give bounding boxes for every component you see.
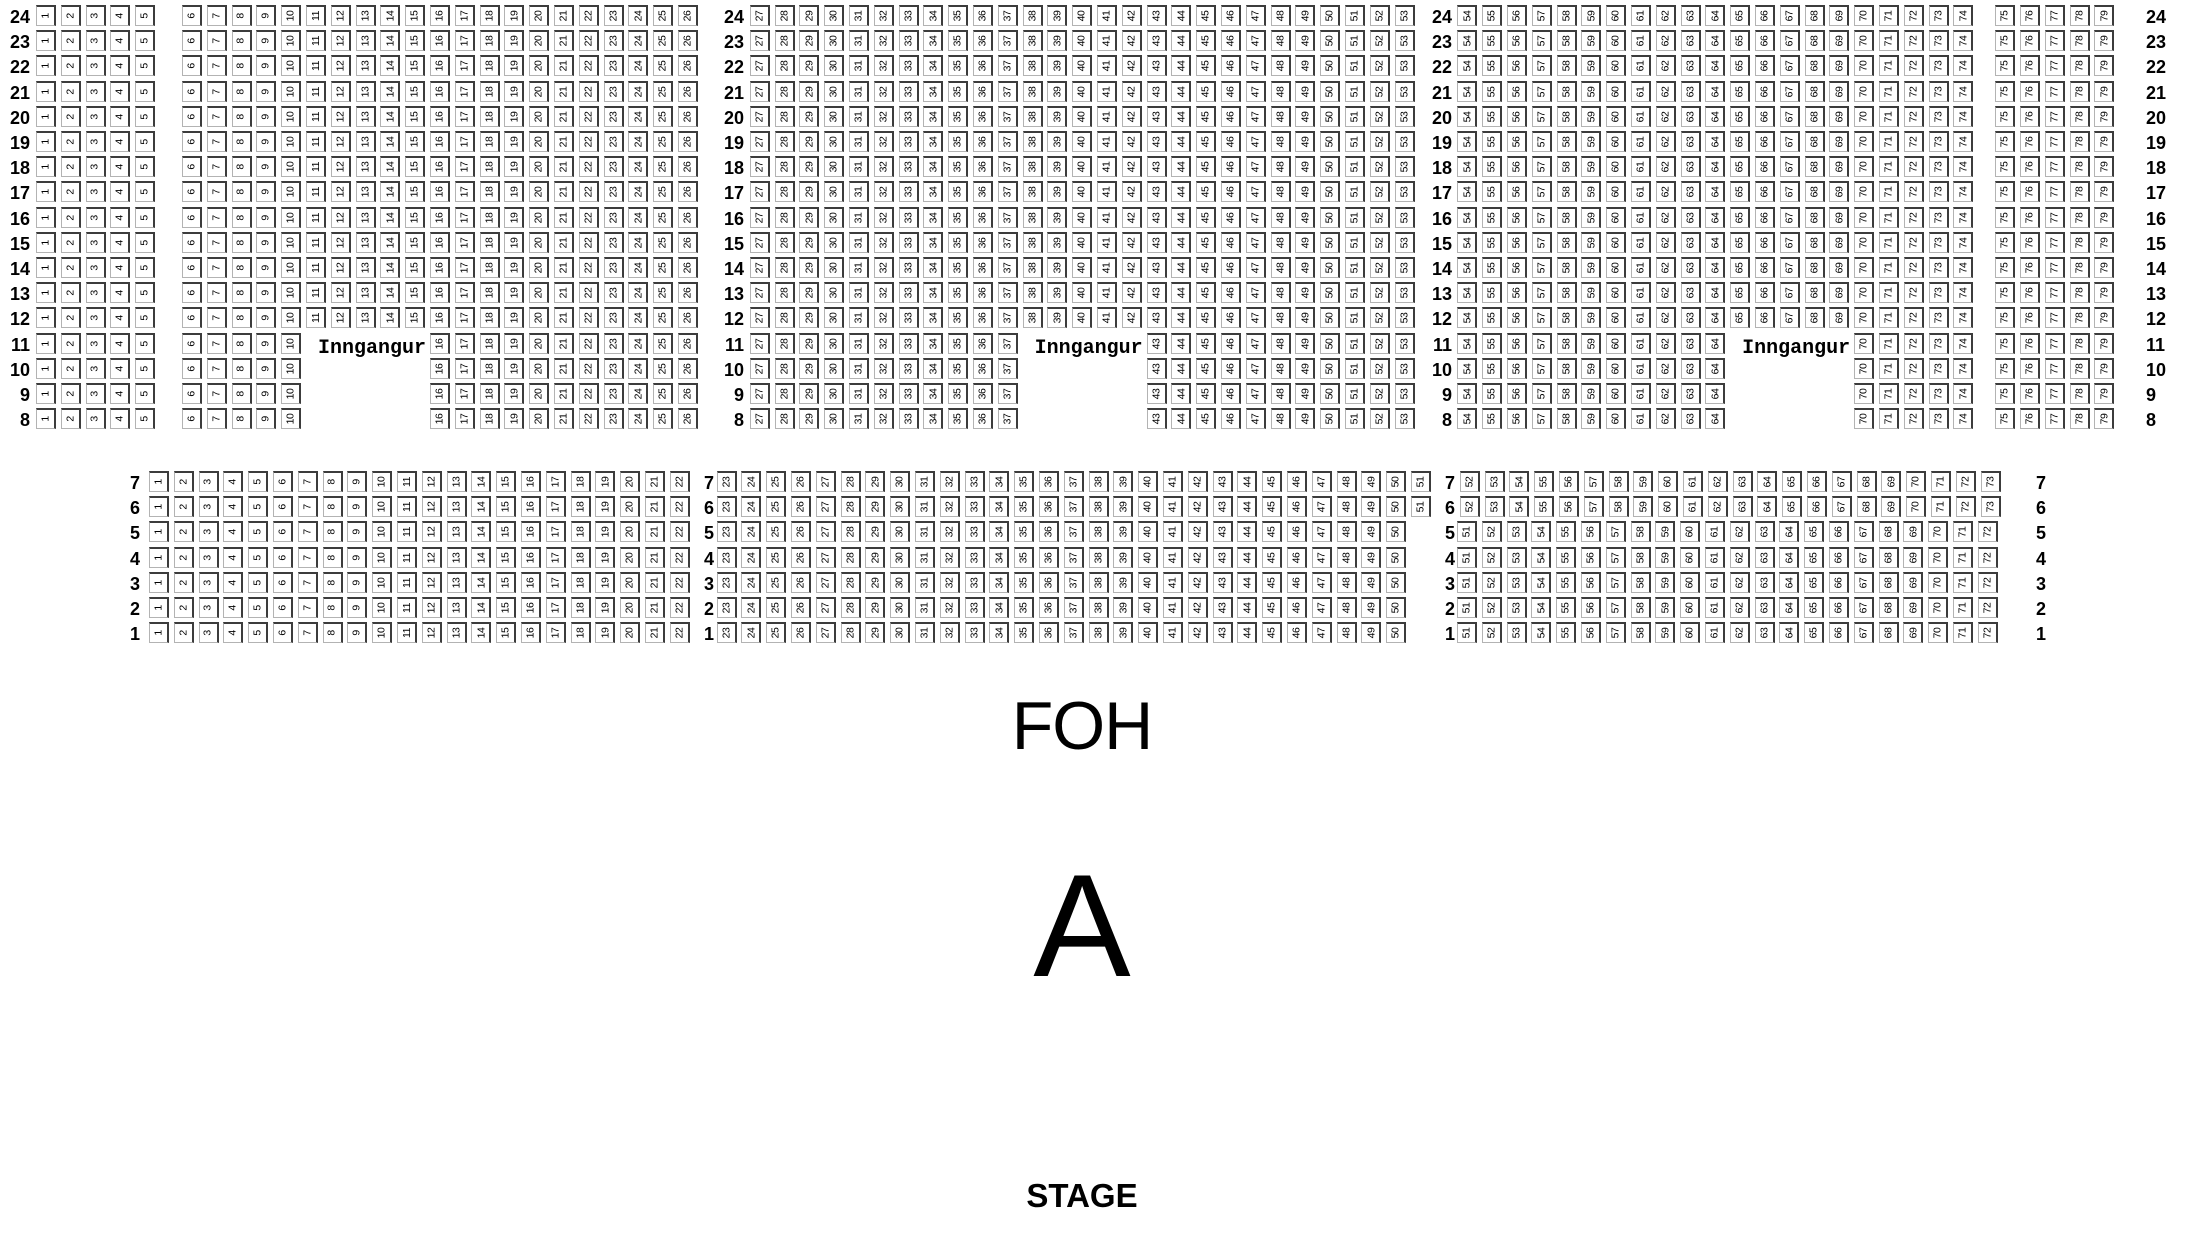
seat[interactable]: 17 [546, 622, 566, 643]
seat[interactable]: 48 [1271, 181, 1291, 202]
seat[interactable]: 21 [554, 282, 574, 303]
seat[interactable]: 35 [948, 55, 968, 76]
seat[interactable]: 40 [1138, 521, 1158, 542]
seat[interactable]: 52 [1482, 572, 1502, 593]
seat[interactable]: 46 [1221, 307, 1241, 328]
seat[interactable]: 47 [1246, 181, 1266, 202]
seat[interactable]: 31 [849, 383, 869, 404]
seat[interactable]: 25 [766, 496, 786, 517]
seat[interactable]: 5 [135, 131, 155, 152]
seat[interactable]: 1 [149, 622, 169, 643]
seat[interactable]: 1 [36, 383, 56, 404]
seat[interactable]: 18 [480, 383, 500, 404]
seat[interactable]: 55 [1482, 131, 1502, 152]
seat[interactable]: 5 [135, 307, 155, 328]
seat[interactable]: 67 [1780, 5, 1800, 26]
seat[interactable]: 61 [1631, 106, 1651, 127]
seat[interactable]: 64 [1705, 408, 1725, 429]
seat[interactable]: 43 [1213, 597, 1233, 618]
seat[interactable]: 13 [447, 547, 467, 568]
seat[interactable]: 70 [1854, 30, 1874, 51]
seat[interactable]: 1 [149, 521, 169, 542]
seat[interactable]: 51 [1345, 55, 1365, 76]
seat[interactable]: 17 [546, 496, 566, 517]
seat[interactable]: 74 [1953, 232, 1973, 253]
seat[interactable]: 2 [61, 5, 81, 26]
seat[interactable]: 45 [1262, 572, 1282, 593]
seat[interactable]: 55 [1482, 333, 1502, 354]
seat[interactable]: 64 [1705, 282, 1725, 303]
seat[interactable]: 57 [1532, 55, 1552, 76]
seat[interactable]: 21 [554, 408, 574, 429]
seat[interactable]: 2 [61, 55, 81, 76]
seat[interactable]: 11 [306, 232, 326, 253]
seat[interactable]: 43 [1147, 358, 1167, 379]
seat[interactable]: 12 [331, 257, 351, 278]
seat[interactable]: 70 [1854, 106, 1874, 127]
seat[interactable]: 2 [174, 547, 194, 568]
seat[interactable]: 19 [504, 307, 524, 328]
seat[interactable]: 3 [199, 572, 219, 593]
seat[interactable]: 27 [750, 156, 770, 177]
seat[interactable]: 11 [306, 30, 326, 51]
seat[interactable]: 8 [232, 181, 252, 202]
seat[interactable]: 60 [1606, 207, 1626, 228]
seat[interactable]: 24 [741, 572, 761, 593]
seat[interactable]: 68 [1805, 106, 1825, 127]
seat[interactable]: 50 [1320, 131, 1340, 152]
seat[interactable]: 70 [1928, 622, 1948, 643]
seat[interactable]: 46 [1221, 232, 1241, 253]
seat[interactable]: 24 [628, 55, 648, 76]
seat[interactable]: 48 [1271, 257, 1291, 278]
seat[interactable]: 60 [1606, 307, 1626, 328]
seat[interactable]: 2 [61, 81, 81, 102]
seat[interactable]: 3 [86, 5, 106, 26]
seat[interactable]: 21 [554, 106, 574, 127]
seat[interactable]: 5 [248, 597, 268, 618]
seat[interactable]: 6 [182, 358, 202, 379]
seat[interactable]: 27 [750, 5, 770, 26]
seat[interactable]: 33 [899, 408, 919, 429]
seat[interactable]: 37 [1064, 572, 1084, 593]
seat[interactable]: 38 [1023, 106, 1043, 127]
seat[interactable]: 44 [1171, 257, 1191, 278]
seat[interactable]: 74 [1953, 408, 1973, 429]
seat[interactable]: 6 [182, 207, 202, 228]
seat[interactable]: 44 [1171, 81, 1191, 102]
seat[interactable]: 70 [1928, 521, 1948, 542]
seat[interactable]: 4 [110, 207, 130, 228]
seat[interactable]: 27 [816, 572, 836, 593]
seat[interactable]: 19 [595, 547, 615, 568]
seat[interactable]: 67 [1854, 572, 1874, 593]
seat[interactable]: 20 [620, 597, 640, 618]
seat[interactable]: 51 [1457, 597, 1477, 618]
seat[interactable]: 13 [356, 81, 376, 102]
seat[interactable]: 51 [1345, 307, 1365, 328]
seat[interactable]: 31 [915, 572, 935, 593]
seat[interactable]: 52 [1370, 408, 1390, 429]
seat[interactable]: 3 [86, 408, 106, 429]
seat[interactable]: 71 [1953, 572, 1973, 593]
seat[interactable]: 77 [2045, 55, 2065, 76]
seat[interactable]: 57 [1532, 5, 1552, 26]
seat[interactable]: 45 [1196, 81, 1216, 102]
seat[interactable]: 72 [1904, 358, 1924, 379]
seat[interactable]: 69 [1829, 106, 1849, 127]
seat[interactable]: 11 [397, 496, 417, 517]
seat[interactable]: 21 [645, 521, 665, 542]
seat[interactable]: 4 [223, 572, 243, 593]
seat[interactable]: 52 [1370, 106, 1390, 127]
seat[interactable]: 59 [1581, 5, 1601, 26]
seat[interactable]: 25 [653, 282, 673, 303]
seat[interactable]: 30 [824, 408, 844, 429]
seat[interactable]: 5 [135, 383, 155, 404]
seat[interactable]: 39 [1113, 572, 1133, 593]
seat[interactable]: 12 [331, 207, 351, 228]
seat[interactable]: 31 [849, 131, 869, 152]
seat[interactable]: 69 [1903, 572, 1923, 593]
seat[interactable]: 23 [604, 181, 624, 202]
seat[interactable]: 14 [380, 81, 400, 102]
seat[interactable]: 13 [447, 597, 467, 618]
seat[interactable]: 26 [678, 156, 698, 177]
seat[interactable]: 29 [799, 81, 819, 102]
seat[interactable]: 62 [1656, 5, 1676, 26]
seat[interactable]: 47 [1246, 232, 1266, 253]
seat[interactable]: 59 [1655, 572, 1675, 593]
seat[interactable]: 16 [430, 106, 450, 127]
seat[interactable]: 26 [791, 572, 811, 593]
seat[interactable]: 12 [331, 81, 351, 102]
seat[interactable]: 73 [1929, 383, 1949, 404]
seat[interactable]: 11 [397, 622, 417, 643]
seat[interactable]: 16 [521, 597, 541, 618]
seat[interactable]: 12 [422, 572, 442, 593]
seat[interactable]: 57 [1532, 383, 1552, 404]
seat[interactable]: 54 [1531, 547, 1551, 568]
seat[interactable]: 63 [1755, 622, 1775, 643]
seat[interactable]: 19 [504, 156, 524, 177]
seat[interactable]: 64 [1705, 156, 1725, 177]
seat[interactable]: 18 [480, 358, 500, 379]
seat[interactable]: 45 [1196, 156, 1216, 177]
seat[interactable]: 40 [1072, 307, 1092, 328]
seat[interactable]: 49 [1361, 622, 1381, 643]
seat[interactable]: 2 [61, 30, 81, 51]
seat[interactable]: 11 [397, 521, 417, 542]
seat[interactable]: 72 [1904, 282, 1924, 303]
seat[interactable]: 36 [973, 232, 993, 253]
seat[interactable]: 18 [480, 207, 500, 228]
seat[interactable]: 24 [741, 471, 761, 492]
seat[interactable]: 62 [1730, 597, 1750, 618]
seat[interactable]: 6 [182, 307, 202, 328]
seat[interactable]: 69 [1903, 521, 1923, 542]
seat[interactable]: 38 [1089, 521, 1109, 542]
seat[interactable]: 20 [529, 207, 549, 228]
seat[interactable]: 53 [1395, 81, 1415, 102]
seat[interactable]: 3 [86, 106, 106, 127]
seat[interactable]: 30 [824, 55, 844, 76]
seat[interactable]: 48 [1271, 333, 1291, 354]
seat[interactable]: 24 [741, 547, 761, 568]
seat[interactable]: 27 [816, 521, 836, 542]
seat[interactable]: 36 [1039, 496, 1059, 517]
seat[interactable]: 7 [207, 131, 227, 152]
seat[interactable]: 38 [1023, 81, 1043, 102]
seat[interactable]: 12 [422, 622, 442, 643]
seat[interactable]: 68 [1805, 307, 1825, 328]
seat[interactable]: 25 [653, 5, 673, 26]
seat[interactable]: 27 [816, 622, 836, 643]
seat[interactable]: 70 [1906, 496, 1926, 517]
seat[interactable]: 41 [1163, 521, 1183, 542]
seat[interactable]: 48 [1337, 572, 1357, 593]
seat[interactable]: 8 [232, 358, 252, 379]
seat[interactable]: 58 [1557, 30, 1577, 51]
seat[interactable]: 29 [799, 106, 819, 127]
seat[interactable]: 33 [899, 55, 919, 76]
seat[interactable]: 56 [1581, 572, 1601, 593]
seat[interactable]: 5 [135, 156, 155, 177]
seat[interactable]: 63 [1681, 232, 1701, 253]
seat[interactable]: 1 [36, 207, 56, 228]
seat[interactable]: 7 [207, 81, 227, 102]
seat[interactable]: 75 [1995, 181, 2015, 202]
seat[interactable]: 2 [61, 207, 81, 228]
seat[interactable]: 48 [1337, 547, 1357, 568]
seat[interactable]: 54 [1457, 307, 1477, 328]
seat[interactable]: 18 [480, 106, 500, 127]
seat[interactable]: 74 [1953, 257, 1973, 278]
seat[interactable]: 11 [306, 81, 326, 102]
seat[interactable]: 70 [1854, 5, 1874, 26]
seat[interactable]: 56 [1507, 207, 1527, 228]
seat[interactable]: 73 [1929, 408, 1949, 429]
seat[interactable]: 21 [645, 547, 665, 568]
seat[interactable]: 57 [1532, 232, 1552, 253]
seat[interactable]: 44 [1171, 408, 1191, 429]
seat[interactable]: 28 [775, 106, 795, 127]
seat[interactable]: 38 [1023, 156, 1043, 177]
seat[interactable]: 10 [372, 496, 392, 517]
seat[interactable]: 36 [1039, 471, 1059, 492]
seat[interactable]: 2 [174, 496, 194, 517]
seat[interactable]: 63 [1681, 408, 1701, 429]
seat[interactable]: 14 [380, 207, 400, 228]
seat[interactable]: 56 [1507, 106, 1527, 127]
seat[interactable]: 21 [554, 358, 574, 379]
seat[interactable]: 54 [1457, 232, 1477, 253]
seat[interactable]: 33 [899, 333, 919, 354]
seat[interactable]: 26 [678, 207, 698, 228]
seat[interactable]: 37 [998, 232, 1018, 253]
seat[interactable]: 76 [2020, 181, 2040, 202]
seat[interactable]: 19 [504, 106, 524, 127]
seat[interactable]: 3 [86, 232, 106, 253]
seat[interactable]: 72 [1978, 597, 1998, 618]
seat[interactable]: 48 [1271, 232, 1291, 253]
seat[interactable]: 32 [874, 408, 894, 429]
seat[interactable]: 43 [1213, 521, 1233, 542]
seat[interactable]: 23 [717, 471, 737, 492]
seat[interactable]: 58 [1557, 156, 1577, 177]
seat[interactable]: 58 [1609, 471, 1629, 492]
seat[interactable]: 60 [1658, 471, 1678, 492]
seat[interactable]: 23 [604, 131, 624, 152]
seat[interactable]: 9 [256, 30, 276, 51]
seat[interactable]: 47 [1246, 408, 1266, 429]
seat[interactable]: 63 [1755, 547, 1775, 568]
seat[interactable]: 61 [1631, 81, 1651, 102]
seat[interactable]: 60 [1680, 547, 1700, 568]
seat[interactable]: 5 [135, 408, 155, 429]
seat[interactable]: 37 [998, 55, 1018, 76]
seat[interactable]: 20 [529, 30, 549, 51]
seat[interactable]: 26 [678, 358, 698, 379]
seat[interactable]: 5 [248, 572, 268, 593]
seat[interactable]: 68 [1879, 597, 1899, 618]
seat[interactable]: 62 [1656, 232, 1676, 253]
seat[interactable]: 58 [1557, 81, 1577, 102]
seat[interactable]: 56 [1507, 81, 1527, 102]
seat[interactable]: 58 [1631, 521, 1651, 542]
seat[interactable]: 15 [405, 156, 425, 177]
seat[interactable]: 63 [1681, 181, 1701, 202]
seat[interactable]: 54 [1509, 496, 1529, 517]
seat[interactable]: 38 [1023, 131, 1043, 152]
seat[interactable]: 9 [347, 471, 367, 492]
seat[interactable]: 44 [1171, 383, 1191, 404]
seat[interactable]: 22 [670, 572, 690, 593]
seat[interactable]: 59 [1581, 181, 1601, 202]
seat[interactable]: 79 [2094, 307, 2114, 328]
seat[interactable]: 79 [2094, 207, 2114, 228]
seat[interactable]: 10 [281, 207, 301, 228]
seat[interactable]: 31 [915, 597, 935, 618]
seat[interactable]: 18 [480, 282, 500, 303]
seat[interactable]: 32 [940, 572, 960, 593]
seat[interactable]: 76 [2020, 383, 2040, 404]
seat[interactable]: 9 [256, 232, 276, 253]
seat[interactable]: 14 [471, 496, 491, 517]
seat[interactable]: 78 [2070, 383, 2090, 404]
seat[interactable]: 69 [1881, 496, 1901, 517]
seat[interactable]: 71 [1879, 232, 1899, 253]
seat[interactable]: 66 [1755, 257, 1775, 278]
seat[interactable]: 28 [775, 5, 795, 26]
seat[interactable]: 1 [36, 307, 56, 328]
seat[interactable]: 1 [36, 131, 56, 152]
seat[interactable]: 24 [628, 333, 648, 354]
seat[interactable]: 47 [1246, 55, 1266, 76]
seat[interactable]: 27 [750, 232, 770, 253]
seat[interactable]: 56 [1507, 30, 1527, 51]
seat[interactable]: 46 [1287, 547, 1307, 568]
seat[interactable]: 56 [1507, 131, 1527, 152]
seat[interactable]: 46 [1221, 5, 1241, 26]
seat[interactable]: 54 [1457, 55, 1477, 76]
seat[interactable]: 25 [653, 383, 673, 404]
seat[interactable]: 41 [1097, 156, 1117, 177]
seat[interactable]: 54 [1457, 181, 1477, 202]
seat[interactable]: 22 [579, 81, 599, 102]
seat[interactable]: 38 [1023, 282, 1043, 303]
seat[interactable]: 74 [1953, 106, 1973, 127]
seat[interactable]: 49 [1295, 257, 1315, 278]
seat[interactable]: 33 [899, 156, 919, 177]
seat[interactable]: 44 [1237, 572, 1257, 593]
seat[interactable]: 52 [1370, 282, 1390, 303]
seat[interactable]: 62 [1656, 207, 1676, 228]
seat[interactable]: 28 [775, 30, 795, 51]
seat[interactable]: 34 [923, 181, 943, 202]
seat[interactable]: 15 [405, 307, 425, 328]
seat[interactable]: 45 [1196, 282, 1216, 303]
seat[interactable]: 79 [2094, 55, 2114, 76]
seat[interactable]: 64 [1705, 207, 1725, 228]
seat[interactable]: 4 [110, 55, 130, 76]
seat[interactable]: 73 [1929, 307, 1949, 328]
seat[interactable]: 46 [1221, 257, 1241, 278]
seat[interactable]: 66 [1755, 307, 1775, 328]
seat[interactable]: 20 [620, 572, 640, 593]
seat[interactable]: 3 [86, 307, 106, 328]
seat[interactable]: 70 [1854, 232, 1874, 253]
seat[interactable]: 34 [923, 282, 943, 303]
seat[interactable]: 65 [1730, 207, 1750, 228]
seat[interactable]: 7 [207, 30, 227, 51]
seat[interactable]: 35 [948, 307, 968, 328]
seat[interactable]: 41 [1097, 282, 1117, 303]
seat[interactable]: 14 [380, 232, 400, 253]
seat[interactable]: 50 [1320, 307, 1340, 328]
seat[interactable]: 36 [973, 408, 993, 429]
seat[interactable]: 57 [1532, 307, 1552, 328]
seat[interactable]: 17 [455, 5, 475, 26]
seat[interactable]: 39 [1113, 622, 1133, 643]
seat[interactable]: 37 [1064, 547, 1084, 568]
seat[interactable]: 12 [331, 307, 351, 328]
seat[interactable]: 31 [915, 547, 935, 568]
seat[interactable]: 22 [579, 282, 599, 303]
seat[interactable]: 71 [1879, 181, 1899, 202]
seat[interactable]: 78 [2070, 131, 2090, 152]
seat[interactable]: 67 [1780, 156, 1800, 177]
seat[interactable]: 15 [405, 55, 425, 76]
seat[interactable]: 8 [232, 257, 252, 278]
seat[interactable]: 19 [595, 521, 615, 542]
seat[interactable]: 59 [1581, 232, 1601, 253]
seat[interactable]: 20 [529, 5, 549, 26]
seat[interactable]: 11 [397, 471, 417, 492]
seat[interactable]: 50 [1386, 622, 1406, 643]
seat[interactable]: 68 [1805, 181, 1825, 202]
seat[interactable]: 61 [1631, 257, 1651, 278]
seat[interactable]: 10 [281, 257, 301, 278]
seat[interactable]: 4 [223, 521, 243, 542]
seat[interactable]: 16 [521, 496, 541, 517]
seat[interactable]: 35 [948, 383, 968, 404]
seat[interactable]: 73 [1929, 181, 1949, 202]
seat[interactable]: 60 [1606, 383, 1626, 404]
seat[interactable]: 18 [480, 131, 500, 152]
seat[interactable]: 32 [874, 307, 894, 328]
seat[interactable]: 71 [1879, 383, 1899, 404]
